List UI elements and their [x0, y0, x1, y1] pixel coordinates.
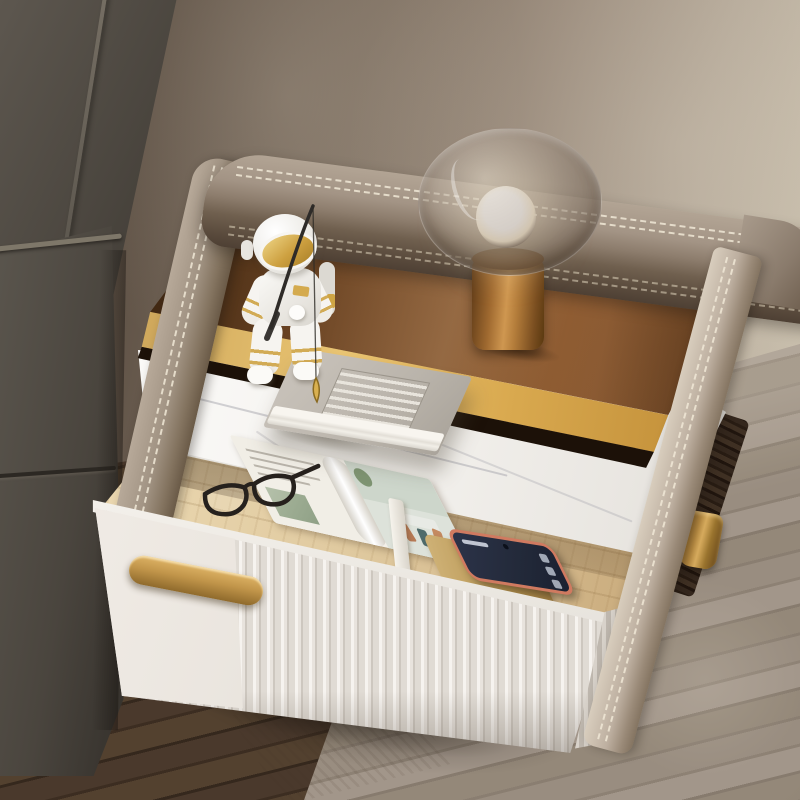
fishing-rod — [225, 180, 485, 480]
phone-camera-dot — [502, 544, 510, 550]
figurine-group — [225, 180, 485, 480]
phone-app-icon — [544, 566, 556, 576]
phone-clock-glyph — [461, 539, 489, 547]
phone-app-icon — [538, 553, 550, 563]
scene — [0, 0, 800, 800]
phone-app-icon — [551, 579, 563, 589]
